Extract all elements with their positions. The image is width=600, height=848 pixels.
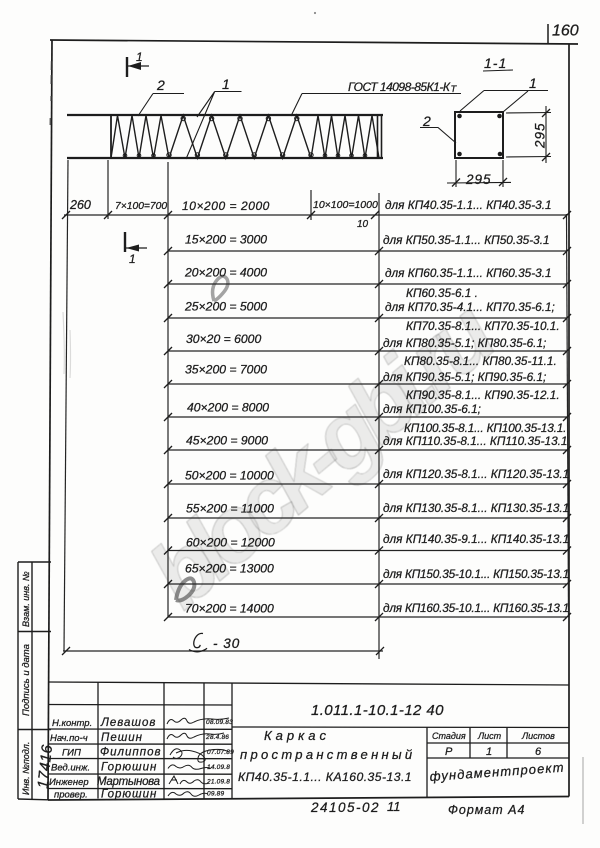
svg-text:провер.: провер.: [54, 790, 88, 801]
svg-text:КП60.35-6.1 .: КП60.35-6.1 .: [406, 286, 478, 300]
svg-text:пространственный: пространственный: [240, 747, 415, 762]
svg-text:Горюшин: Горюшин: [101, 789, 157, 801]
svg-text:11: 11: [387, 799, 401, 814]
svg-text:для КП50.35-1.1... КП50.35-3.1: для КП50.35-1.1... КП50.35-3.1: [383, 233, 550, 247]
svg-text:1: 1: [129, 252, 136, 266]
svg-text:50×200 = 10000: 50×200 = 10000: [185, 469, 274, 483]
svg-text:35×200 = 7000: 35×200 = 7000: [185, 363, 267, 377]
svg-text:КП100.35-8.1... КП100.35-13.1.: КП100.35-8.1... КП100.35-13.1.: [404, 421, 566, 435]
svg-text:ГИП: ГИП: [62, 748, 81, 759]
svg-text:для КП150.35-10.1... КП150.35-: для КП150.35-10.1... КП150.35-13.1: [383, 567, 569, 581]
svg-text:для КП90.35-5.1; КП90.35-6.1;: для КП90.35-5.1; КП90.35-6.1;: [383, 370, 546, 384]
svg-text:Подпись и дата: Подпись и дата: [21, 644, 32, 716]
svg-text:2: 2: [422, 113, 431, 129]
svg-text:для КП40.35-1.1... КП40.35-3.1: для КП40.35-1.1... КП40.35-3.1: [385, 198, 552, 212]
svg-text:Р: Р: [445, 746, 453, 758]
svg-text:КП90.35-8.1... КП90.35-12.1.: КП90.35-8.1... КП90.35-12.1.: [406, 388, 560, 402]
svg-text:2: 2: [156, 77, 165, 93]
svg-text:для КП130.35-8.1... КП130.35-1: для КП130.35-8.1... КП130.35-13.1: [383, 501, 569, 515]
svg-text:КП40.35-1.1... КА160.35-13.1: КП40.35-1.1... КА160.35-13.1: [238, 770, 412, 784]
svg-text:Горюшин: Горюшин: [101, 762, 157, 774]
svg-text:для КП70.35-4.1... КП70.35-6.1: для КП70.35-4.1... КП70.35-6.1;: [385, 300, 555, 314]
svg-text:60×200 = 12000: 60×200 = 12000: [186, 536, 275, 550]
svg-text:Вед.инж.: Вед.инж.: [51, 763, 90, 774]
svg-text:Взам. инв. №: Взам. инв. №: [21, 571, 31, 627]
svg-text:40×200 = 8000: 40×200 = 8000: [187, 401, 269, 415]
svg-text:1: 1: [136, 50, 143, 64]
svg-text:260: 260: [69, 198, 91, 212]
svg-text:- 30: - 30: [213, 636, 240, 651]
svg-text:25×200 = 5000: 25×200 = 5000: [184, 300, 267, 314]
svg-text:28.4.86: 28.4.86: [205, 734, 229, 741]
svg-text:08.09.83: 08.09.83: [206, 719, 233, 726]
svg-text:45×200 = 9000: 45×200 = 9000: [186, 434, 268, 448]
svg-text:Каркас: Каркас: [264, 728, 330, 743]
svg-text:Формат А4: Формат А4: [448, 803, 525, 817]
svg-text:07.07.89: 07.07.89: [207, 749, 234, 756]
svg-text:1-1: 1-1: [484, 55, 507, 71]
svg-text:для КП160.35-10.1... КП160.35-: для КП160.35-10.1... КП160.35-13.1: [383, 601, 569, 615]
svg-text:14.09.8: 14.09.8: [207, 764, 230, 771]
svg-text:30×20 = 6000: 30×20 = 6000: [186, 332, 261, 346]
svg-text:Стадия: Стадия: [432, 731, 466, 741]
svg-text:ГОСТ 14098-85К1-К: ГОСТ 14098-85К1-К: [348, 80, 451, 94]
svg-text:для КП110.35-8.1... КП110.35-1: для КП110.35-8.1... КП110.35-13.1: [383, 434, 568, 448]
svg-text:21.09.8: 21.09.8: [206, 779, 230, 786]
svg-text:65×200 = 13000: 65×200 = 13000: [185, 562, 274, 576]
svg-text:Мартынова: Мартынова: [97, 776, 160, 788]
svg-text:Пешин: Пешин: [101, 732, 143, 744]
svg-text:для КП120.35-8.1... КП120.35-1: для КП120.35-8.1... КП120.35-13.1: [383, 467, 569, 481]
svg-text:10×100=1000: 10×100=1000: [313, 199, 378, 211]
svg-text:Н.контр.: Н.контр.: [52, 718, 92, 729]
svg-text:7×100=700: 7×100=700: [115, 201, 167, 212]
svg-text:Листов: Листов: [521, 731, 555, 741]
svg-text:1.011.1-10.1-12 40: 1.011.1-10.1-12 40: [311, 702, 444, 719]
svg-text:для КП80.35-5.1; КП80.35-6.1;: для КП80.35-5.1; КП80.35-6.1;: [383, 336, 546, 350]
svg-text:20×200 = 4000: 20×200 = 4000: [184, 266, 267, 280]
svg-text:Инженер: Инженер: [49, 777, 89, 788]
svg-text:24105-02: 24105-02: [310, 800, 380, 815]
svg-text:Левашов: Левашов: [100, 717, 156, 729]
svg-text:для КП100.35-6.1;: для КП100.35-6.1;: [383, 402, 481, 416]
svg-text:Инв. №подл.: Инв. №подл.: [21, 742, 31, 795]
svg-text:10×200 = 2000: 10×200 = 2000: [182, 199, 270, 213]
svg-text:1: 1: [486, 746, 492, 758]
svg-text:1: 1: [529, 75, 537, 91]
svg-text:1: 1: [222, 76, 230, 92]
svg-text:6: 6: [535, 746, 542, 758]
svg-text:КП70.35-8.1... КП70.35-10.1.: КП70.35-8.1... КП70.35-10.1.: [406, 319, 560, 333]
svg-text:295: 295: [465, 172, 492, 187]
svg-text:Нач.по-ч: Нач.по-ч: [50, 733, 88, 744]
svg-text:15×200 = 3000: 15×200 = 3000: [185, 233, 267, 247]
svg-text:Филиппов: Филиппов: [100, 747, 161, 759]
svg-text:10: 10: [357, 219, 369, 230]
svg-text:для КП60.35-1.1... КП60.35-3.1: для КП60.35-1.1... КП60.35-3.1: [385, 266, 552, 280]
svg-text:160: 160: [552, 23, 579, 40]
svg-text:295: 295: [533, 122, 548, 149]
svg-text:70×200 = 14000: 70×200 = 14000: [185, 602, 274, 616]
svg-text:для КП140.35-9.1... КП140.35-1: для КП140.35-9.1... КП140.35-13.1: [383, 532, 569, 546]
svg-text:09.89: 09.89: [207, 791, 224, 798]
svg-text:Лист: Лист: [477, 731, 502, 741]
svg-text:55×200 = 11000: 55×200 = 11000: [186, 502, 274, 516]
svg-text:КП80.35-8.1... КП80.35-11.1.: КП80.35-8.1... КП80.35-11.1.: [404, 354, 557, 368]
